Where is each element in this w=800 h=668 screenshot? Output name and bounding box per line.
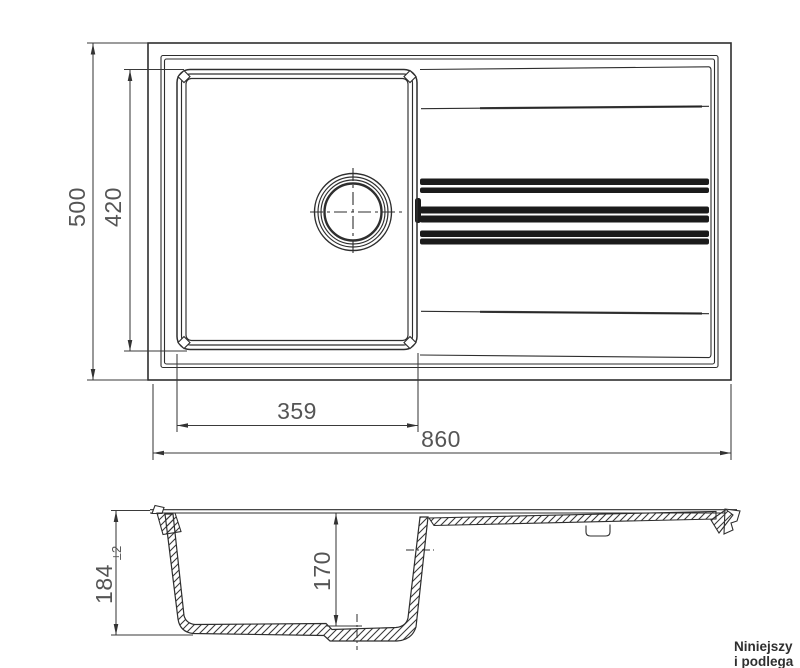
groove-bar [420, 179, 709, 186]
drainboard-tab [586, 525, 610, 537]
dim-bowl-opening-depth-label: 420 [100, 187, 126, 227]
dim-bowl-depth-label: 170 [309, 551, 335, 591]
dim-bowl-opening-length-label: 359 [277, 398, 317, 424]
bowl-section-wall [165, 514, 428, 641]
section-view [150, 506, 740, 651]
groove-bar [420, 216, 709, 223]
groove-bar [420, 239, 709, 245]
dimension-359: 359 [177, 353, 418, 432]
groove-bar [420, 207, 709, 214]
footnote: Niniejszy i podlega [734, 639, 794, 668]
drainboard-grooves [415, 106, 709, 313]
drawing-canvas: 500 420 359 860 [0, 0, 800, 668]
dim-overall-length-label: 860 [421, 426, 461, 452]
footnote-line2: i podlega [734, 654, 794, 668]
sink-technical-drawing: 500 420 359 860 [0, 0, 800, 668]
dim-total-height-tolerance: ±2 [109, 546, 124, 560]
dim-overall-depth-label: 500 [64, 187, 90, 227]
groove-bar [420, 188, 709, 194]
overflow-notch [415, 198, 421, 223]
groove-bar [420, 231, 709, 238]
drainboard-section-strip [429, 512, 716, 526]
drain [310, 168, 404, 256]
dimension-420: 420 [100, 70, 187, 352]
dimension-860: 860 [153, 384, 731, 460]
dim-total-height-label: 184 [91, 564, 117, 604]
top-view [148, 43, 731, 380]
dimension-170: 170 [309, 514, 362, 627]
footnote-line1: Niniejszy [734, 639, 793, 654]
